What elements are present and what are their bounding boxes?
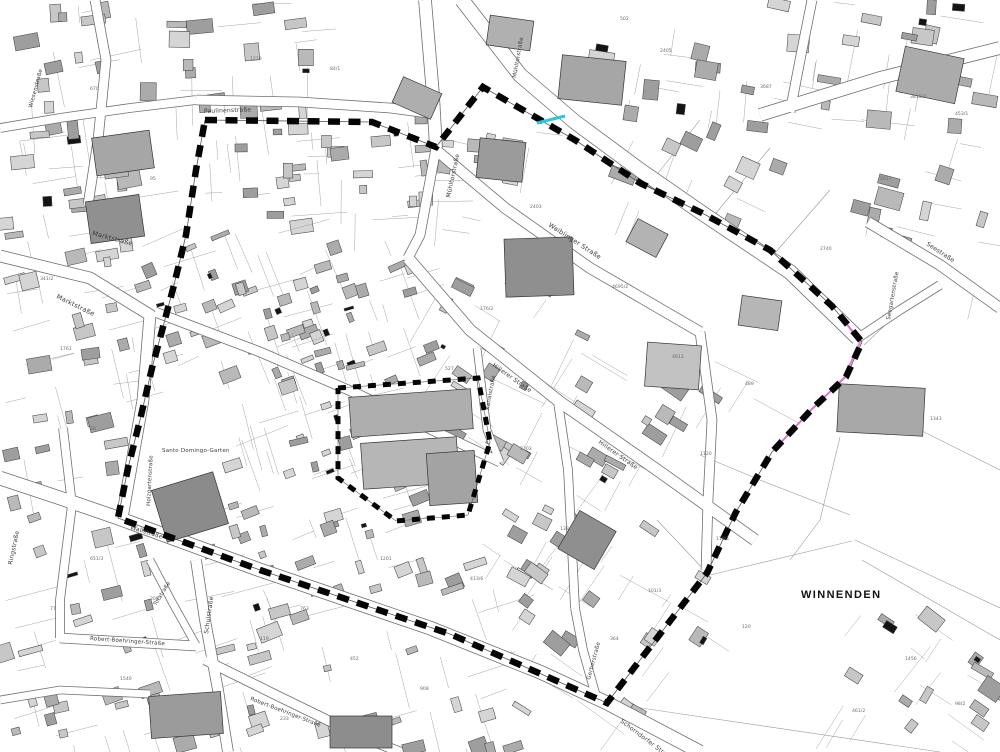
building xyxy=(694,60,718,81)
parcel-number: 4695/2 xyxy=(612,284,628,290)
building xyxy=(842,35,860,47)
building xyxy=(243,188,258,198)
parcel-number: 118/1 xyxy=(716,536,729,542)
parcel-number: 84/1 xyxy=(330,66,340,72)
building xyxy=(645,342,702,390)
map-viewport[interactable]: PaulinenstraßeMühltorstraßeMühltorstraße… xyxy=(0,0,1000,752)
building xyxy=(623,105,639,122)
building xyxy=(140,83,156,101)
building xyxy=(927,0,937,15)
parcel-number: 527 xyxy=(445,366,454,372)
building xyxy=(426,450,478,505)
building xyxy=(283,197,295,206)
building xyxy=(371,135,391,147)
building xyxy=(58,729,68,738)
building xyxy=(44,101,54,113)
building xyxy=(747,120,769,132)
building xyxy=(866,110,892,130)
building xyxy=(0,217,14,231)
building xyxy=(353,171,372,178)
parcel-number: 1456 xyxy=(905,656,917,662)
parcel-number: 95 xyxy=(150,176,156,182)
building xyxy=(167,21,187,27)
building xyxy=(738,295,782,330)
parcel-number: 77 xyxy=(50,606,56,612)
parcel-number: 651/3 xyxy=(90,556,103,562)
parcel-number: 413/6 xyxy=(470,576,483,582)
parcel-number: 119 xyxy=(260,636,269,642)
building xyxy=(105,303,117,313)
parcel-number: 364 xyxy=(610,636,619,642)
parcel-number: 176/2 xyxy=(480,306,493,312)
building xyxy=(409,196,417,207)
building xyxy=(283,163,293,178)
parcel-number: 233 xyxy=(280,716,289,722)
building xyxy=(290,218,314,234)
building xyxy=(919,19,927,26)
building xyxy=(267,211,284,218)
parcel-number: 1120 xyxy=(700,451,712,457)
parcel-number: 1540 xyxy=(120,676,132,682)
parcel-number: 908 xyxy=(420,686,429,692)
parcel-number: 670 xyxy=(90,86,99,92)
parcel-number: 502 xyxy=(620,16,629,22)
building xyxy=(169,31,190,47)
parcel-number: 453/1 xyxy=(955,111,968,117)
building xyxy=(288,123,308,135)
parcel-number: 1219 xyxy=(250,56,262,62)
parcel-number: 98/2 xyxy=(955,701,965,707)
building xyxy=(10,154,34,169)
building xyxy=(273,129,282,135)
building xyxy=(67,120,79,139)
building xyxy=(467,139,480,152)
parcel-number: 3687 xyxy=(760,84,772,90)
building xyxy=(299,106,307,119)
parcel-number: 2405 xyxy=(660,48,672,54)
building xyxy=(81,347,100,360)
parcel-number: 101/3 xyxy=(648,588,661,594)
building xyxy=(70,603,81,615)
map-canvas: PaulinenstraßeMühltorstraßeMühltorstraße… xyxy=(0,0,1000,752)
building xyxy=(105,461,119,476)
parcel-number: 1201 xyxy=(380,556,392,562)
parcel-number: 452 xyxy=(350,656,359,662)
parcel-number: 2740 xyxy=(820,246,832,252)
parcel-number: 489 xyxy=(745,381,754,387)
building xyxy=(43,196,52,206)
building xyxy=(65,411,73,424)
building xyxy=(186,19,213,35)
parcel-number: 3815/2 xyxy=(910,94,926,100)
building xyxy=(643,79,660,100)
parcel-number: 341/2 xyxy=(40,276,53,282)
parcel-number: 1761 xyxy=(60,346,72,352)
building xyxy=(486,15,534,51)
parcel-number: 58 xyxy=(90,426,96,432)
parcel-number: 461/2 xyxy=(852,708,865,714)
parcel-number: 2403 xyxy=(530,204,542,210)
building xyxy=(322,135,332,148)
building xyxy=(504,237,574,297)
building xyxy=(235,144,247,152)
parcel-number: 4613 xyxy=(672,354,684,360)
parcel-number: 138 xyxy=(560,526,569,532)
building xyxy=(349,389,473,437)
building xyxy=(948,118,962,133)
building xyxy=(92,130,155,176)
city-label: WINNENDEN xyxy=(801,589,881,601)
building xyxy=(330,716,392,748)
building xyxy=(183,59,193,70)
building xyxy=(365,529,374,538)
building xyxy=(58,13,67,22)
building xyxy=(298,49,313,65)
building xyxy=(360,185,367,193)
parcel-number: 763 xyxy=(300,606,309,612)
parcel-number: 2087 xyxy=(150,596,162,602)
building xyxy=(676,103,685,114)
building xyxy=(103,257,111,267)
building xyxy=(149,692,224,739)
building xyxy=(30,131,49,139)
street-label: Santo Domingo-Garten xyxy=(162,448,230,454)
building xyxy=(476,138,526,183)
building xyxy=(330,146,349,161)
building xyxy=(74,52,83,63)
parcel-number: 120 xyxy=(742,624,751,630)
parcel-number: 2617 xyxy=(880,176,892,182)
parcel-number: 2303 xyxy=(520,446,532,452)
building xyxy=(952,4,965,12)
building xyxy=(558,55,626,105)
building xyxy=(303,69,310,73)
building xyxy=(837,384,925,436)
parcel-number: 1343 xyxy=(930,416,942,422)
